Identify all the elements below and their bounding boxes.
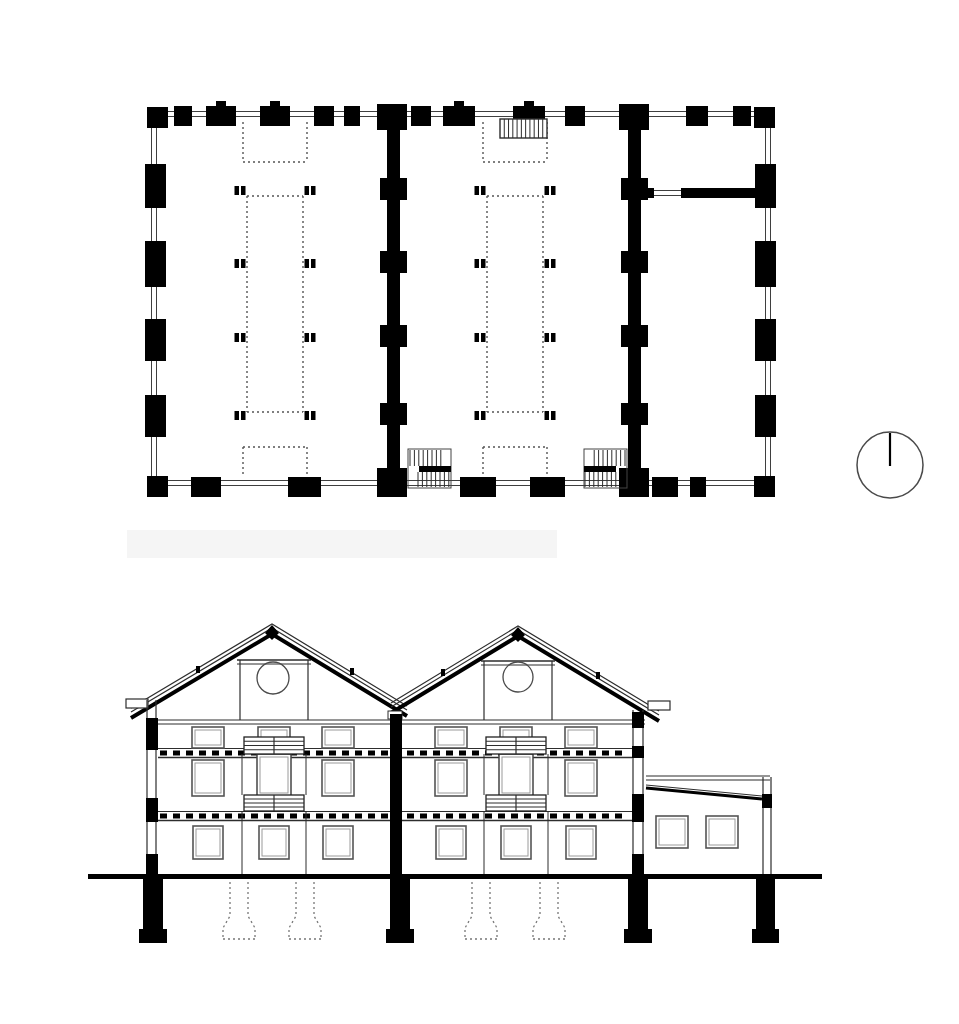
- architectural-drawing-sheet: [0, 0, 959, 1024]
- oculus-window: [257, 662, 289, 694]
- section-foundations: [139, 879, 779, 943]
- floor-plan: [127, 101, 776, 558]
- section-roof: [126, 624, 670, 721]
- oculus-window: [503, 662, 533, 692]
- section-ground-line: [88, 874, 822, 879]
- paper-smudge: [127, 530, 557, 558]
- plan-stairs: [408, 119, 627, 488]
- section-annex: [646, 776, 770, 799]
- plan-walls: [145, 101, 776, 497]
- building-section: [88, 624, 822, 943]
- north-arrow-symbol: [857, 432, 923, 498]
- plan-partition-wall: [641, 188, 760, 198]
- drawing-svg: [0, 0, 959, 1024]
